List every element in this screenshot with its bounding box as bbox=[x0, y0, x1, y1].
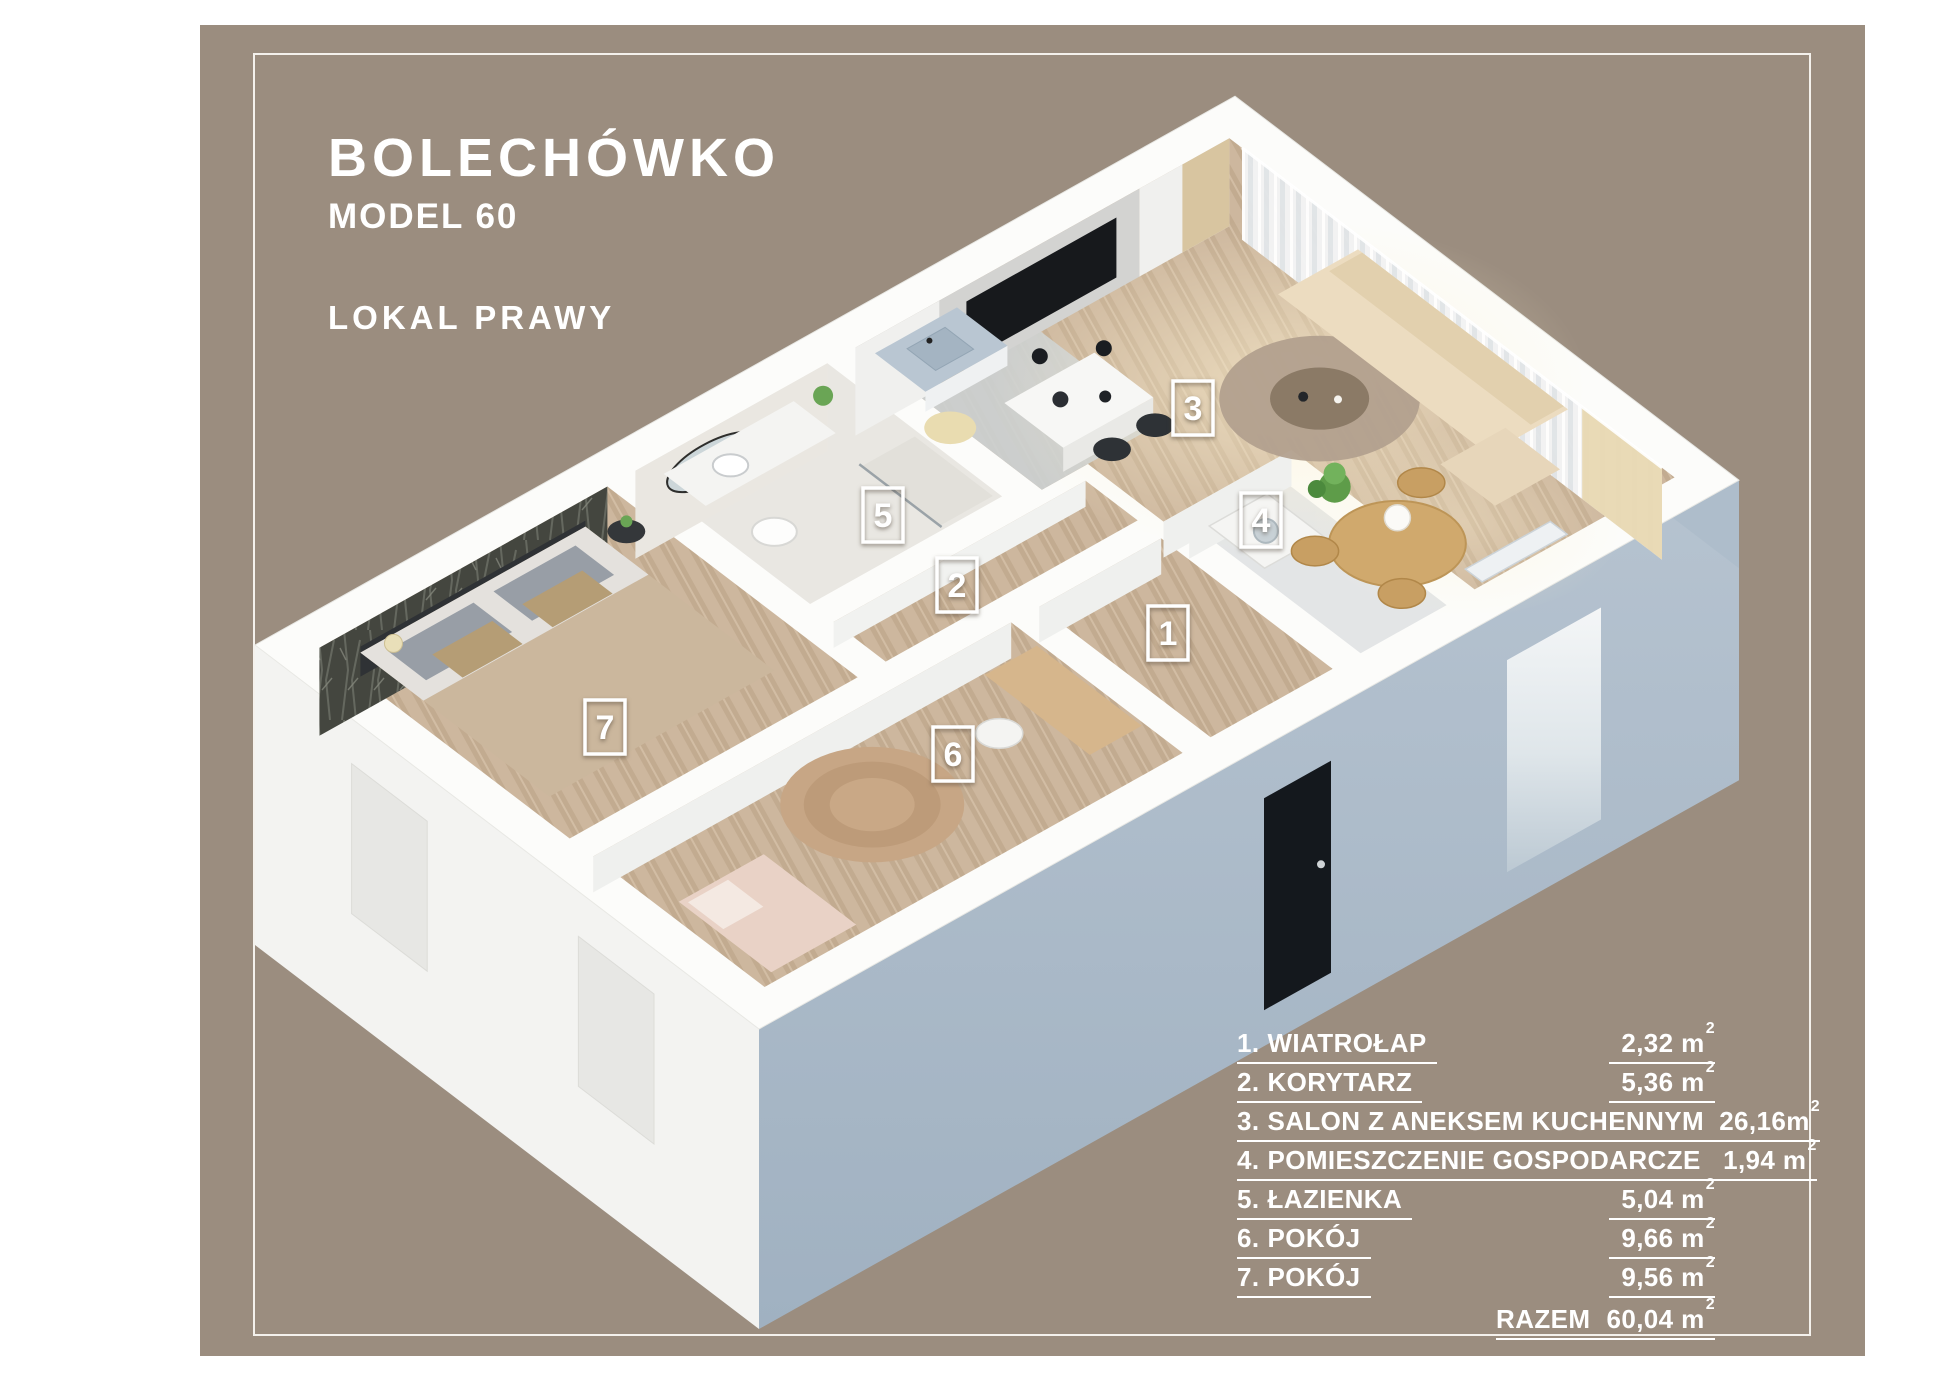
svg-text:4: 4 bbox=[1252, 502, 1271, 540]
svg-text:6: 6 bbox=[944, 736, 963, 774]
coffee-table bbox=[1270, 368, 1369, 430]
stool-poof bbox=[924, 412, 976, 445]
legend-row: 4.POMIESZCZENIE GOSPODARCZE 1,94 m2 bbox=[1237, 1145, 1715, 1181]
svg-text:2: 2 bbox=[948, 567, 967, 605]
legend-row: 7.POKÓJ 9,56 m2 bbox=[1237, 1262, 1715, 1298]
svg-text:7: 7 bbox=[596, 709, 615, 747]
svg-text:1: 1 bbox=[1159, 615, 1178, 653]
legend-row: 2.KORYTARZ 5,36 m2 bbox=[1237, 1067, 1715, 1103]
svg-text:5: 5 bbox=[874, 497, 893, 535]
legend-row: 1.WIATROŁAP 2,32 m2 bbox=[1237, 1028, 1715, 1064]
svg-text:3: 3 bbox=[1184, 390, 1203, 428]
legend-row: 5.ŁAZIENKA 5,04 m2 bbox=[1237, 1184, 1715, 1220]
legend-row: 3.SALON Z ANEKSEM KUCHENNYM 26,16m2 bbox=[1237, 1106, 1715, 1142]
toilet bbox=[752, 518, 797, 546]
page: BOLECHÓWKO MODEL 60 LOKAL PRAWY 1234567 … bbox=[0, 0, 1951, 1380]
room-legend: 1.WIATROŁAP 2,32 m2 2.KORYTARZ 5,36 m2 3… bbox=[1237, 1028, 1715, 1343]
bar-stool bbox=[1136, 413, 1174, 437]
legend-total-row: RAZEM60,04 m2 bbox=[1237, 1304, 1715, 1340]
bar-stool bbox=[1093, 437, 1131, 461]
legend-row: 6.POKÓJ 9,66 m2 bbox=[1237, 1223, 1715, 1259]
